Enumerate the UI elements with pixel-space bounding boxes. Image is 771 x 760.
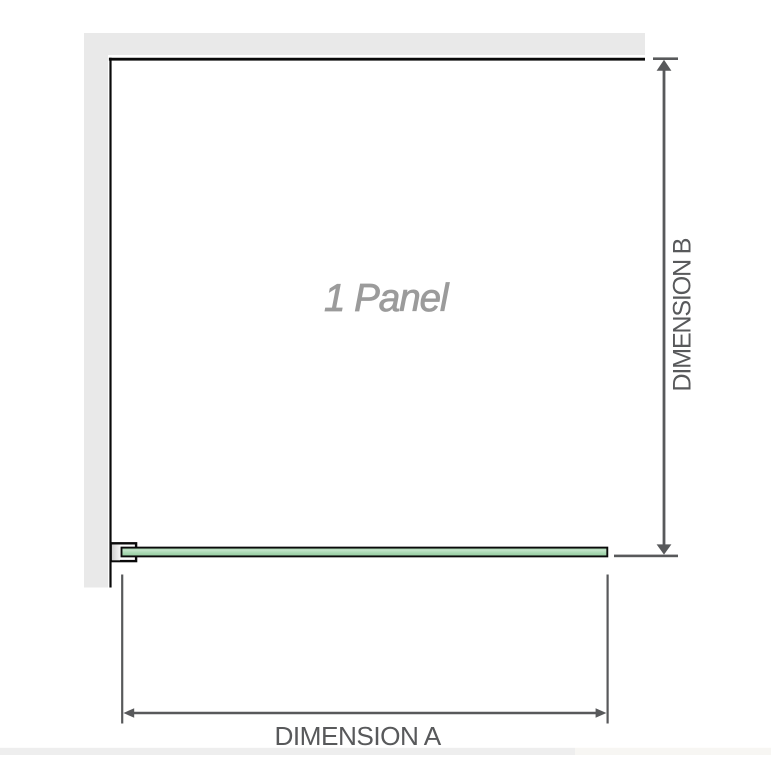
svg-text:1 Panel: 1 Panel xyxy=(324,277,450,320)
svg-text:DIMENSION B: DIMENSION B xyxy=(668,238,696,391)
svg-text:DIMENSION A: DIMENSION A xyxy=(274,721,441,751)
